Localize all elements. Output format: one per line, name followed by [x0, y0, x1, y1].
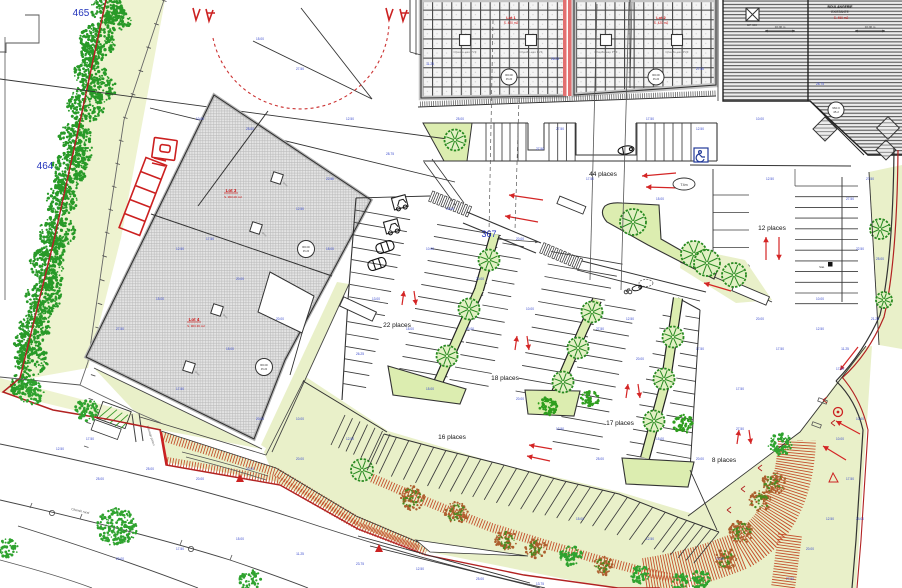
svg-text:EXISTANTE: EXISTANTE [831, 10, 848, 14]
svg-text:S. 960.00 m2: S. 960.00 m2 [224, 195, 242, 199]
svg-text:27.50: 27.50 [596, 327, 604, 331]
svg-text:Lot 4: Lot 4 [189, 317, 200, 322]
svg-text:27.50: 27.50 [536, 147, 544, 151]
svg-text:Lot 1: Lot 1 [506, 15, 516, 20]
svg-text:465: 465 [73, 8, 90, 19]
svg-text:17.50: 17.50 [646, 117, 654, 121]
svg-text:S. 450 m2: S. 450 m2 [834, 16, 849, 20]
svg-text:45.2: 45.2 [833, 110, 839, 114]
svg-text:45.20: 45.20 [506, 78, 513, 81]
svg-text:S. 420 m2: S. 420 m2 [654, 21, 669, 25]
svg-text:27.50: 27.50 [846, 197, 854, 201]
svg-text:15.00: 15.00 [326, 247, 334, 251]
svg-text:BOULANGERIE: BOULANGERIE [827, 5, 853, 9]
svg-text:45.20: 45.20 [303, 250, 310, 253]
svg-text:8 places: 8 places [712, 457, 737, 464]
svg-text:10.00: 10.00 [756, 117, 764, 121]
svg-text:28.75: 28.75 [816, 82, 824, 86]
svg-text:10.00 m: 10.00 m [775, 25, 786, 29]
svg-text:18 places: 18 places [491, 375, 520, 382]
svg-text:960.00: 960.00 [652, 74, 660, 77]
svg-text:S. 963.36 m2: S. 963.36 m2 [187, 324, 205, 328]
svg-text:S. 420 m2: S. 420 m2 [504, 21, 519, 25]
svg-text:17 places: 17 places [606, 420, 635, 427]
svg-text:10.00: 10.00 [426, 247, 434, 251]
svg-text:Chauffe-eau PVF: Chauffe-eau PVF [594, 50, 617, 54]
svg-text:Chauffe-eau PVF: Chauffe-eau PVF [665, 50, 688, 54]
svg-text:T4m: T4m [680, 183, 687, 187]
svg-text:20.00: 20.00 [636, 357, 644, 361]
svg-text:464: 464 [37, 161, 54, 172]
svg-text:22.50: 22.50 [856, 247, 864, 251]
svg-text:Chauffe-eau PVF: Chauffe-eau PVF [519, 50, 542, 54]
svg-text:Chauffe-eau PVF: Chauffe-eau PVF [453, 50, 476, 54]
svg-text:12.50: 12.50 [296, 207, 304, 211]
svg-text:Lot 2: Lot 2 [656, 15, 666, 20]
svg-text:16 places: 16 places [438, 434, 467, 441]
svg-text:EP 400: EP 400 [747, 23, 757, 27]
svg-text:20.00: 20.00 [466, 327, 474, 331]
svg-text:25.00: 25.00 [246, 127, 254, 131]
svg-text:45.20: 45.20 [261, 368, 268, 371]
svg-text:10.00 m: 10.00 m [865, 25, 876, 29]
svg-text:960.00: 960.00 [302, 246, 310, 249]
svg-text:17.50: 17.50 [586, 177, 594, 181]
svg-text:Stat.: Stat. [819, 265, 825, 269]
svg-text:45.20: 45.20 [653, 78, 660, 81]
svg-text:11.25: 11.25 [426, 62, 434, 66]
svg-text:960.00: 960.00 [260, 364, 268, 367]
svg-text:367: 367 [481, 229, 496, 239]
svg-text:26.25: 26.25 [551, 57, 559, 61]
svg-text:12 places: 12 places [758, 225, 787, 232]
svg-text:Lot 3: Lot 3 [226, 188, 237, 193]
svg-text:10.00: 10.00 [526, 307, 534, 311]
svg-text:27.50: 27.50 [696, 67, 704, 71]
svg-text:12.50: 12.50 [176, 247, 184, 251]
svg-text:28.75: 28.75 [386, 152, 394, 156]
svg-text:960.00: 960.00 [505, 74, 513, 77]
svg-text:26.25: 26.25 [356, 352, 364, 356]
